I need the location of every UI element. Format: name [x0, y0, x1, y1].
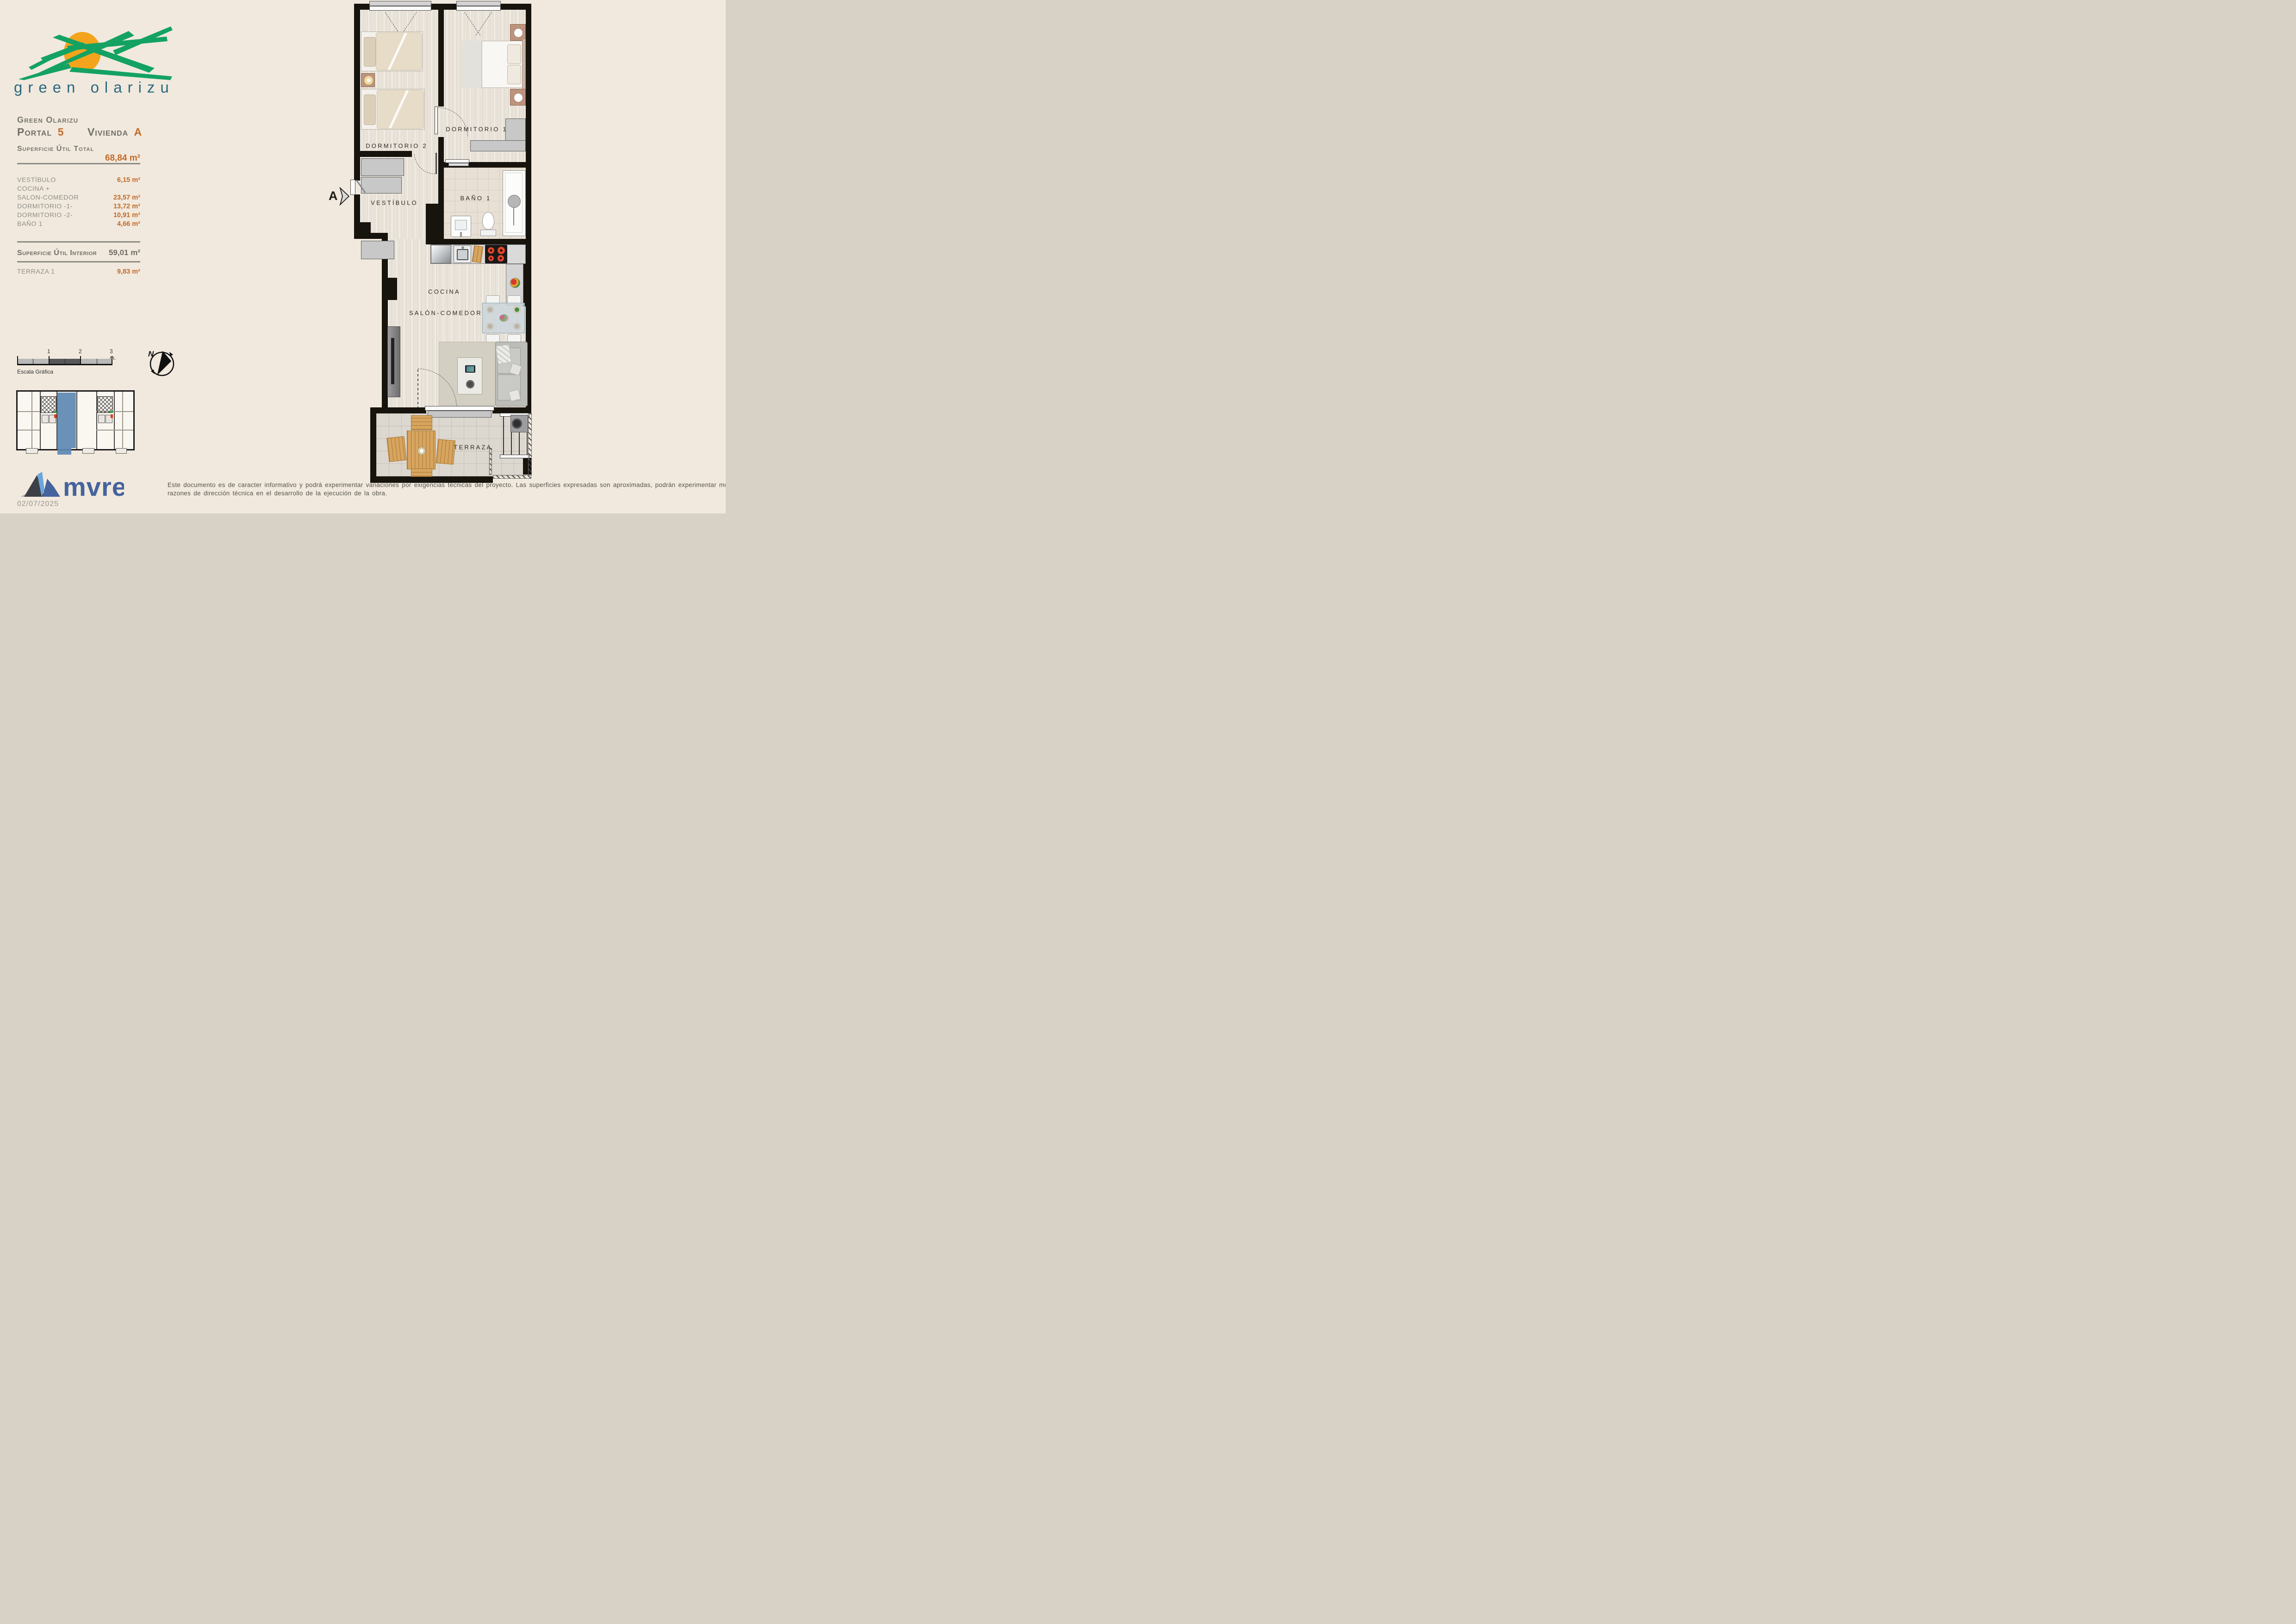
terrace-hatch-inner: [489, 448, 492, 475]
wall-dorm2-bottom: [354, 151, 412, 157]
logo-wordmark: green olarizu: [14, 79, 174, 96]
drying-rack-line: [503, 417, 504, 456]
dining-table: [482, 303, 525, 333]
unit-value: A: [134, 126, 143, 138]
kitchen-hob: [485, 245, 507, 263]
hob-burner: [498, 247, 505, 254]
dorm1-wardrobe-horizontal: [470, 140, 526, 151]
terrace-chair-right: [436, 439, 455, 464]
vestibule-closet: [361, 241, 394, 259]
table-centerpiece: [499, 314, 509, 322]
scale-seg: [17, 359, 33, 364]
surface-row: VESTÍBULO 6,15 m²: [17, 176, 140, 184]
surface-row: DORMITORIO -2- 10,91 m²: [17, 211, 140, 219]
terrace-chair-bottom: [411, 468, 432, 477]
sink-tap: [460, 232, 462, 237]
row-value: 13,72 m²: [113, 203, 140, 210]
kitchen-sink-basin: [457, 249, 468, 260]
scale-baseline: [17, 364, 112, 365]
portal-label: Portal: [17, 126, 52, 138]
terrace-table-plate: [417, 447, 426, 455]
scale-seg: [49, 359, 65, 364]
key-plan-elevator: [42, 415, 49, 423]
mvre-mountain-blue: [43, 479, 60, 497]
entrance-door: [350, 180, 355, 195]
label-vestibulo: VESTÍBULO: [371, 200, 418, 206]
row-value: 23,57 m²: [113, 194, 140, 201]
terrace-sliding-door-frame: [425, 406, 494, 411]
scale-segments: [17, 359, 112, 364]
scale-endtick: [17, 356, 18, 364]
row-label: DORMITORIO -2-: [17, 211, 73, 219]
divider-mid: [17, 241, 140, 243]
document-date: 02/07/2025: [17, 500, 59, 508]
key-plan-elevator: [98, 415, 105, 423]
disclaimer-line-2: razones de dirección técnica en el desar…: [168, 490, 718, 497]
divider-bottom: [17, 261, 140, 262]
hob-burner: [488, 256, 494, 261]
key-plan-highlighted-unit: [57, 393, 76, 448]
dorm2-bed-2-duvet: [377, 90, 424, 129]
key-plan-red-mark: [54, 414, 56, 418]
terrace-hatch-right: [528, 413, 532, 475]
wall-living-step: [388, 278, 397, 300]
tablet-icon: [465, 365, 475, 373]
project-title: Green Olarizu: [17, 115, 78, 125]
entrance-arrow-icon: [339, 187, 349, 206]
bath-sliding-door-panel: [448, 163, 469, 166]
terrace-value: 9,83 m²: [117, 268, 140, 275]
surface-total-value: 68,84 m²: [17, 153, 140, 163]
washer-drum: [512, 418, 522, 429]
key-plan-highlight-tab: [57, 448, 71, 455]
hob-burner: [488, 247, 494, 254]
dorm1-pillow: [507, 65, 521, 84]
north-compass-icon: N: [147, 348, 177, 378]
scale-tick-label-1: 1: [47, 348, 50, 355]
terrace-row: TERRAZA 1 9,83 m²: [17, 268, 140, 275]
key-plan-wall: [18, 411, 40, 412]
wall-step: [354, 233, 388, 239]
dorm2-bed-1-pillow: [364, 37, 376, 67]
section-marker-a: A: [329, 189, 338, 203]
wall-kitchen-top: [426, 239, 531, 244]
bathroom-sink: [451, 216, 471, 237]
scale-seg: [65, 359, 81, 364]
label-salon-comedor: SALÓN-COMEDOR: [409, 310, 482, 317]
shower-stem: [513, 207, 514, 225]
washing-machine: [510, 415, 528, 432]
scale-caption: Escala Gráfica: [17, 369, 53, 375]
dorm1-nightstand-plate: [514, 93, 523, 102]
sofa-plaid-throw: [495, 344, 511, 364]
compass-north-letter: N: [148, 350, 154, 358]
dorm1-wardrobe-vertical: [505, 119, 526, 141]
interior-surface-row: Superficie Útil Interior 59,01 m²: [17, 248, 140, 257]
wall-terrace-left: [370, 407, 376, 483]
dorm2-door-leaf: [436, 153, 437, 174]
bath-sliding-door: [445, 159, 469, 163]
key-plan-staircore: [97, 396, 113, 413]
row-label: DORMITORIO -1-: [17, 202, 73, 210]
key-plan-wall: [31, 392, 32, 449]
vestibule-wardrobe: [361, 158, 404, 176]
key-plan-wall: [96, 430, 133, 431]
key-plan-balcony: [116, 448, 127, 454]
key-plan-wall: [114, 392, 115, 449]
surface-row: SALON-COMEDOR 23,57 m²: [17, 194, 140, 201]
table-plate: [486, 306, 494, 313]
surface-row: DORMITORIO -1- 13,72 m²: [17, 202, 140, 210]
dorm1-nightstand-plate: [514, 28, 523, 37]
label-dormitorio-1: DORMITORIO 1: [446, 126, 508, 133]
mvre-logo: mvre: [18, 471, 124, 499]
window-dorm2-sill: [369, 6, 431, 11]
decor-bowl: [466, 380, 474, 388]
dorm2-bed-1-duvet: [376, 32, 422, 70]
wall-bedroom-divider-upper: [438, 4, 444, 106]
scale-endtick: [49, 356, 50, 364]
table-plate: [486, 323, 494, 330]
row-label: SALON-COMEDOR: [17, 194, 79, 201]
dorm1-headboard: [522, 39, 526, 90]
wall-bedroom-divider-lower: [438, 137, 444, 168]
kitchen-faucet: [461, 246, 464, 249]
mvre-wordmark: mvre: [63, 472, 124, 499]
interior-value: 59,01 m²: [109, 248, 140, 257]
bathtub: [503, 170, 526, 236]
label-terraza: TERRAZA: [454, 444, 492, 451]
hob-burner: [498, 255, 504, 262]
window-dorm2: [369, 1, 431, 6]
table-plate-food: [513, 306, 521, 313]
shower-head-icon: [508, 195, 521, 208]
terrace-sliding-door-panel: [428, 411, 492, 418]
kitchen-fridge: [431, 245, 451, 263]
label-cocina: COCINA: [428, 288, 460, 295]
drying-rack-bar-bottom: [500, 455, 529, 458]
wall-bath-left: [438, 168, 444, 204]
terrace-table: [407, 431, 436, 469]
dorm2-bed-2-pillow: [364, 94, 376, 125]
key-plan-balcony: [26, 448, 38, 454]
scale-seg: [97, 359, 113, 364]
label-dormitorio-2: DORMITORIO 2: [366, 143, 428, 150]
key-plan-red-mark: [111, 414, 113, 418]
terrace-chair-left: [386, 436, 406, 462]
key-plan-staircore: [41, 396, 56, 413]
terrace-chair-top: [411, 415, 432, 430]
portal-value: 5: [58, 126, 64, 138]
table-plate: [513, 323, 521, 330]
scale-endtick: [112, 356, 112, 364]
row-label: COCINA +: [17, 185, 50, 192]
fruit-bowl: [510, 278, 520, 288]
toilet: [480, 212, 496, 237]
key-plan-wall: [122, 392, 123, 449]
unit-label: Vivienda: [87, 126, 128, 138]
green-olarizu-logo-mark: [13, 25, 173, 80]
terrace-label: TERRAZA 1: [17, 268, 55, 275]
scale-tick-label-2: 2: [79, 348, 82, 355]
interior-label: Superficie Útil Interior: [17, 249, 97, 257]
row-label: BAÑO 1: [17, 220, 43, 227]
toilet-bowl: [482, 212, 494, 230]
window-dorm1-sill: [456, 6, 501, 11]
dorm1-blanket: [461, 41, 482, 88]
row-label: VESTÍBULO: [17, 176, 56, 183]
key-plan-wall: [18, 430, 40, 431]
floorplan-document: green olarizu Green Olarizu Portal 5 Viv…: [0, 0, 726, 513]
wall-terrace-bottom: [370, 476, 493, 483]
scale-seg: [81, 359, 97, 364]
wall-bath-chunk: [426, 204, 444, 244]
sink-basin: [455, 220, 467, 230]
key-plan-balcony: [82, 448, 94, 454]
key-plan-wall: [76, 392, 77, 449]
surface-row: COCINA +: [17, 185, 140, 192]
portal-unit-line: Portal 5 Vivienda A: [17, 126, 142, 138]
key-plan-green-mark: [53, 411, 56, 413]
terrace-hatch-bottom: [493, 475, 531, 479]
dorm2-lamp: [364, 75, 373, 85]
row-value: 4,66 m²: [117, 220, 140, 228]
surface-row: BAÑO 1 4,66 m²: [17, 220, 140, 228]
scale-bar: 1 2 3 m. Escala Gráfica: [17, 348, 112, 371]
row-value: 10,91 m²: [113, 212, 140, 219]
vestibule-wardrobe: [361, 177, 402, 194]
sofa: [495, 342, 528, 406]
window-dorm1: [456, 1, 501, 6]
key-plan-green-mark: [110, 411, 113, 413]
divider-top: [17, 163, 140, 164]
dorm1-door-leaf: [435, 106, 438, 134]
toilet-tank: [480, 230, 496, 236]
tv-screen: [391, 338, 394, 384]
row-value: 6,15 m²: [117, 176, 140, 184]
kitchen-sink-unit: [454, 245, 471, 263]
surface-total-label: Superficie Útil Total: [17, 145, 94, 153]
scale-seg: [33, 359, 49, 364]
terrace-door-dash: [417, 369, 418, 407]
dorm1-pillow: [507, 44, 521, 64]
label-bano: BAÑO 1: [460, 195, 492, 202]
key-plan: [16, 390, 135, 450]
wall-terrace-a: [370, 407, 426, 413]
coffee-table: [457, 357, 482, 394]
scale-endtick: [80, 356, 81, 364]
